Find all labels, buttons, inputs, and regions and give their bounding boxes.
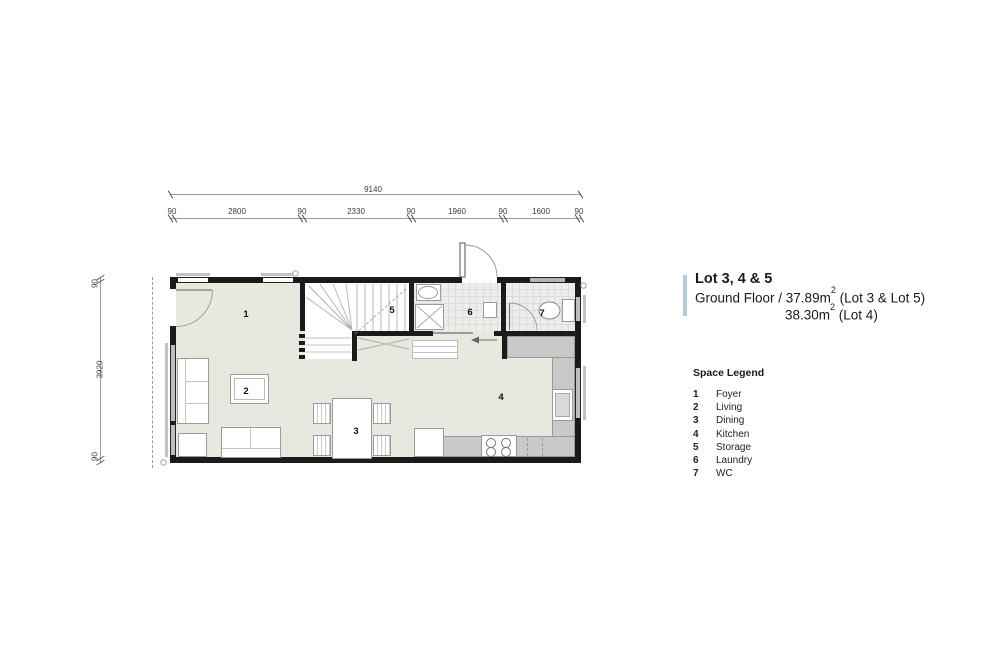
datum-marker [161,271,586,465]
entry-door-swing [460,243,497,277]
washer-cross [417,306,442,328]
room-label-dining: 3 [349,426,363,437]
wc-door-swing [510,303,538,331]
room-label-laundry: 6 [463,307,477,318]
stair-winders [306,284,352,330]
foyer-door-swing [176,290,213,327]
room-label-wc: 7 [535,308,549,319]
floor-plan-sheet: 9140 90 2800 90 2330 90 1960 90 1600 90 … [0,0,1000,667]
plan-linework [0,0,1000,667]
room-label-foyer: 1 [239,309,253,320]
stair-direction-arrow [471,337,497,344]
room-label-storage: 5 [385,305,399,316]
tub-basin [419,287,438,299]
room-label-kitchen: 4 [494,392,508,403]
room-label-living: 2 [239,386,253,397]
storage-door-leaf [358,338,409,350]
stair-lower-treads [306,338,351,352]
